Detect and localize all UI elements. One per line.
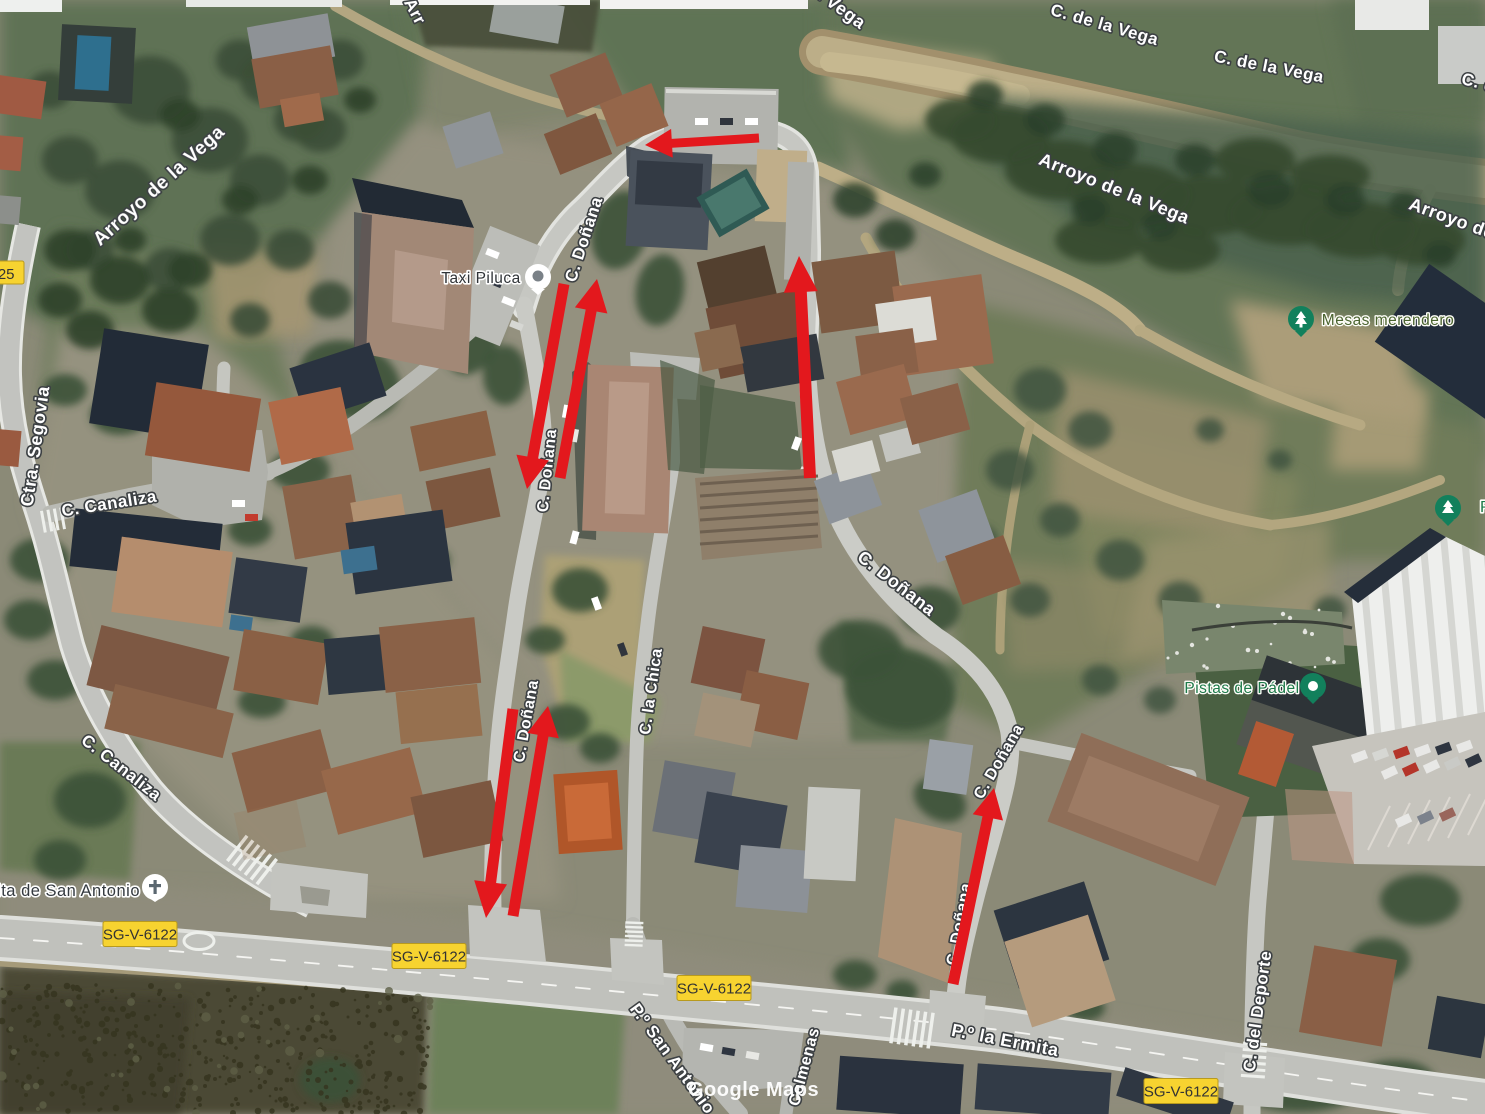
svg-text:Pa: Pa (1480, 499, 1485, 516)
svg-text:Taxi Piluca: Taxi Piluca (441, 270, 521, 287)
svg-text:SG-V-6122: SG-V-6122 (1144, 1083, 1218, 1100)
svg-text:Pistas de Pádel: Pistas de Pádel (1184, 680, 1299, 697)
svg-text:Mesas merendero: Mesas merendero (1322, 312, 1454, 329)
svg-text:SG-V-6122: SG-V-6122 (677, 980, 751, 997)
svg-text:SG-V-6122: SG-V-6122 (103, 926, 177, 943)
svg-text:SG-V-6122: SG-V-6122 (392, 948, 466, 965)
svg-text:mita de San Antonio: mita de San Antonio (0, 882, 140, 900)
svg-text:Google Maps: Google Maps (688, 1079, 819, 1101)
svg-text:125: 125 (0, 266, 15, 283)
